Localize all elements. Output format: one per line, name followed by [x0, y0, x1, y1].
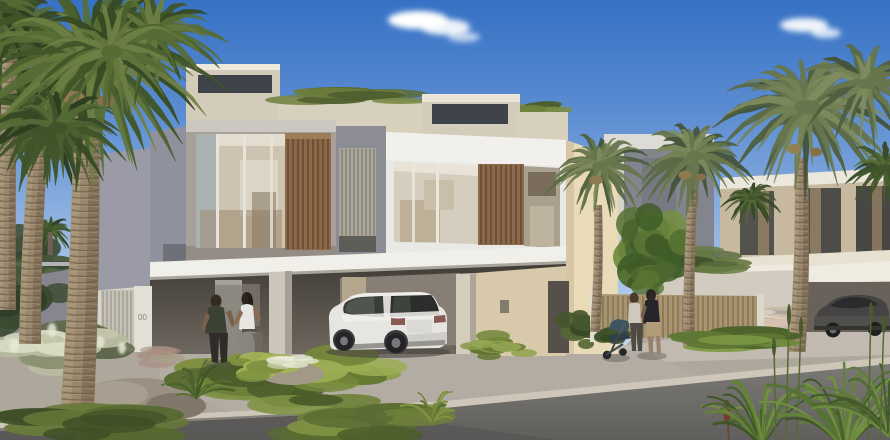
- svg-text:00: 00: [138, 313, 147, 322]
